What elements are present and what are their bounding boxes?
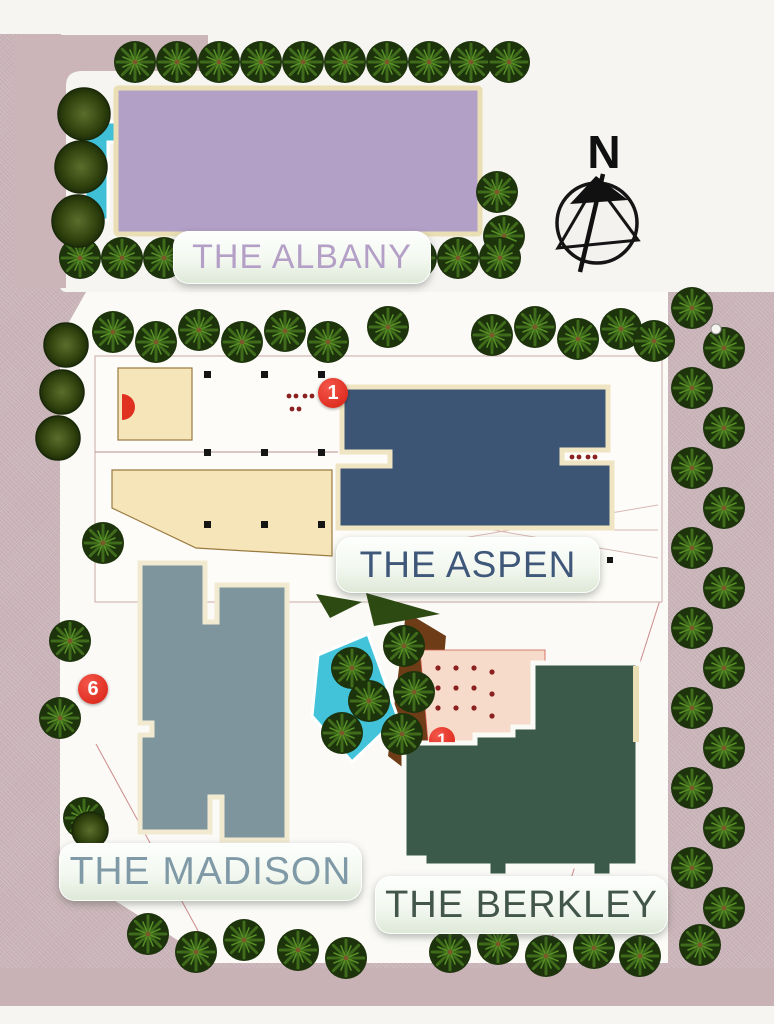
light-fixture-dot bbox=[711, 324, 721, 334]
label-the-aspen-text: THE ASPEN bbox=[360, 544, 577, 586]
label-the-aspen[interactable]: THE ASPEN bbox=[336, 537, 600, 593]
bottom-walkway bbox=[0, 1006, 774, 1024]
site-plan-canvas: N THE ALBANY THE ASPEN THE MADISON THE B… bbox=[0, 0, 774, 1024]
north-label: N bbox=[578, 126, 630, 178]
bottom-road bbox=[0, 968, 774, 1006]
map-marker-badge-6[interactable]: 6 bbox=[78, 674, 108, 704]
label-the-berkley-text: THE BERKLEY bbox=[385, 884, 658, 927]
map-marker-badge-1[interactable]: 1 bbox=[318, 378, 348, 408]
berkley-edge-detail bbox=[633, 666, 639, 742]
label-the-madison-text: THE MADISON bbox=[70, 850, 352, 894]
label-the-albany[interactable]: THE ALBANY bbox=[173, 231, 431, 284]
label-the-albany-text: THE ALBANY bbox=[192, 238, 412, 277]
label-the-berkley[interactable]: THE BERKLEY bbox=[375, 876, 668, 934]
building-albany-footprint[interactable] bbox=[116, 88, 480, 234]
label-the-madison[interactable]: THE MADISON bbox=[59, 843, 362, 901]
